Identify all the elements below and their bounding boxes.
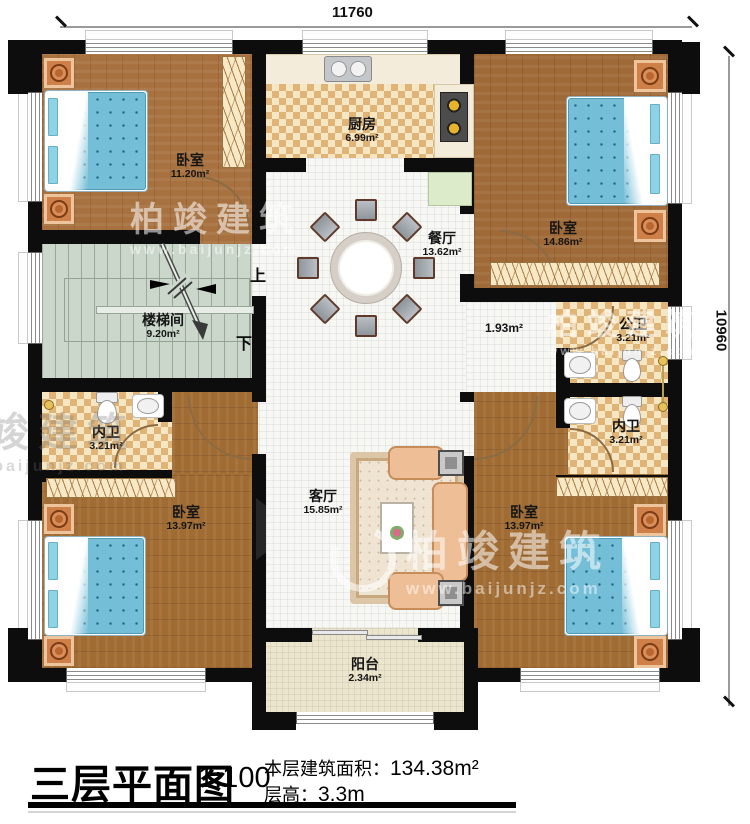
room-label-bath-right: 内卫3.21m² [609, 418, 642, 446]
watermark-url: www.baijunjz.com [130, 241, 302, 257]
bed-sheet [622, 538, 646, 634]
window-sill [302, 30, 428, 40]
kitchen-sink [324, 56, 372, 82]
sliding-door [366, 635, 422, 640]
nightstand [634, 504, 666, 536]
stair-up-label: 上 [250, 262, 266, 286]
window-sill [682, 92, 692, 204]
room-label-hallway: 1.93m² [485, 322, 523, 336]
tv [256, 498, 266, 560]
wall-segment [418, 628, 478, 642]
window [28, 252, 42, 344]
sofa-loveseat [388, 446, 444, 480]
window [668, 92, 682, 204]
window-sill [85, 30, 233, 40]
watermark-text: 柏竣建筑www.baijunjz.com [548, 300, 704, 358]
watermark-brand: 柏竣建筑 [0, 400, 136, 458]
nightstand [44, 636, 74, 666]
stair-down-label: 下 [236, 330, 252, 354]
wash-basin [564, 398, 596, 424]
floor-plan-drawing: 上 下 [0, 0, 750, 745]
window-sill [18, 520, 28, 640]
watermark-url: www.baijunjz.com [548, 344, 704, 358]
cabinet [428, 172, 472, 206]
dining-chair [355, 199, 377, 221]
title-underline-thin [28, 811, 516, 813]
watermark-url: www.baijunjz.com [0, 458, 136, 476]
balcony-pillar [434, 712, 478, 730]
dimension-width: 11760 [332, 4, 373, 21]
window [28, 92, 42, 202]
watermark: 柏竣建筑www.baijunjz.com [130, 192, 302, 257]
room-label-balcony: 阳台2.34m² [348, 656, 381, 684]
wardrobe [46, 478, 176, 498]
nightstand [634, 60, 666, 92]
wall-corner-stub [8, 628, 28, 682]
balcony-railing [296, 712, 434, 724]
dimension-line [60, 26, 692, 28]
wall-segment [252, 642, 266, 714]
dining-chair [413, 257, 435, 279]
dining-chair [355, 315, 377, 337]
room-label-bedroom-top-left: 卧室11.20m² [171, 152, 210, 180]
window-sill [520, 682, 660, 692]
room-label-stairwell: 楼梯间9.20m² [142, 312, 184, 340]
room-label-kitchen: 厨房6.99m² [345, 116, 378, 144]
wash-basin [132, 394, 164, 418]
pillow [46, 144, 60, 186]
watermark-url: www.baijunjz.com [406, 579, 610, 599]
bed-sheet [64, 92, 88, 190]
building-area-label: 本层建筑面积： [264, 759, 390, 779]
dining-chair [297, 257, 319, 279]
room-label-bedroom-top-right: 卧室14.86m² [543, 220, 582, 248]
watermark-text: 柏竣建筑www.baijunjz.com [406, 518, 610, 599]
dimension-line [728, 56, 730, 706]
room-label-living: 客厅15.85m² [303, 488, 342, 516]
window [668, 520, 682, 640]
nightstand [44, 194, 74, 224]
sliding-door [312, 630, 368, 635]
window [85, 40, 233, 54]
wall-segment [28, 378, 252, 392]
nightstand [44, 58, 74, 88]
watermark-brand: 柏竣建筑 [406, 518, 610, 579]
wall-segment [258, 158, 306, 172]
window-sill [18, 252, 28, 344]
window-sill [66, 682, 206, 692]
pillow [648, 102, 662, 146]
watermark-brand: 柏竣建筑 [130, 192, 302, 241]
towel-rail [662, 362, 664, 406]
wall-segment [460, 274, 474, 302]
watermark-text: 柏竣建筑www.baijunjz.com [130, 192, 302, 257]
pillow [46, 540, 60, 582]
floor-plan-page: 上 下 [0, 0, 750, 824]
pillow [648, 152, 662, 196]
dining-table [330, 232, 402, 304]
building-area-line: 本层建筑面积：134.38m² [264, 755, 479, 781]
room-label-bedroom-bottom-left: 卧室13.97m² [166, 504, 205, 532]
wall-corner-stub [682, 628, 700, 682]
nightstand [634, 636, 666, 668]
watermark: 柏竣建筑www.baijunjz.com [548, 300, 704, 358]
wall-segment [252, 392, 266, 402]
window [28, 520, 42, 640]
window [302, 40, 428, 54]
drawing-scale: 1:100 [198, 762, 271, 795]
window-sill [18, 92, 28, 202]
wall-segment [460, 392, 474, 402]
nightstand [634, 210, 666, 242]
towel-rail-end [658, 402, 668, 412]
building-area-value: 134.38m² [390, 757, 479, 780]
title-underline [28, 802, 516, 808]
wardrobe [556, 477, 668, 497]
window-sill [505, 30, 653, 40]
watermark-brand: 柏竣建筑 [548, 300, 704, 344]
wall-corner-stub [8, 40, 28, 94]
watermark-logo-icon [321, 516, 406, 601]
pillow [46, 96, 60, 138]
wall-segment [252, 296, 266, 392]
wall-corner-stub [682, 42, 700, 94]
gas-stove [440, 92, 468, 142]
balcony-pillar [252, 712, 296, 730]
pillow [46, 588, 60, 630]
window [66, 668, 206, 682]
dimension-height: 10960 [712, 310, 729, 352]
watermark: 柏竣建筑www.baijunjz.com [0, 400, 136, 476]
bed-sheet [624, 98, 648, 204]
window [520, 668, 660, 682]
nightstand [44, 504, 74, 534]
wall-segment [464, 642, 478, 714]
watermark: 柏竣建筑www.baijunjz.com [330, 518, 610, 599]
pillow [648, 588, 662, 630]
watermark-text: 柏竣建筑www.baijunjz.com [0, 400, 136, 476]
wall-segment [252, 628, 312, 642]
wardrobe [222, 56, 246, 168]
side-table [438, 450, 464, 476]
wardrobe [490, 262, 660, 286]
window [505, 40, 653, 54]
room-label-dining: 餐厅13.62m² [422, 230, 461, 258]
window-sill [682, 520, 692, 640]
pillow [648, 540, 662, 582]
bed-sheet [64, 538, 88, 634]
